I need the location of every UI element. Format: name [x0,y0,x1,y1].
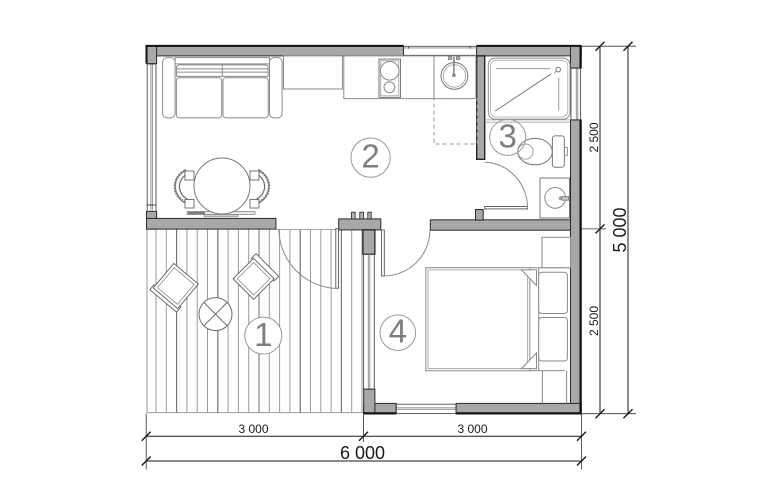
svg-text:4: 4 [389,313,407,350]
svg-text:3 000: 3 000 [457,422,487,436]
svg-text:2: 2 [361,138,379,175]
svg-text:2 500: 2 500 [587,306,601,336]
svg-text:2 500: 2 500 [587,122,601,152]
svg-text:3: 3 [499,117,517,154]
svg-text:3 000: 3 000 [238,422,268,436]
svg-text:1: 1 [254,316,272,353]
svg-text:6 000: 6 000 [340,443,385,463]
svg-text:5 000: 5 000 [610,207,630,252]
